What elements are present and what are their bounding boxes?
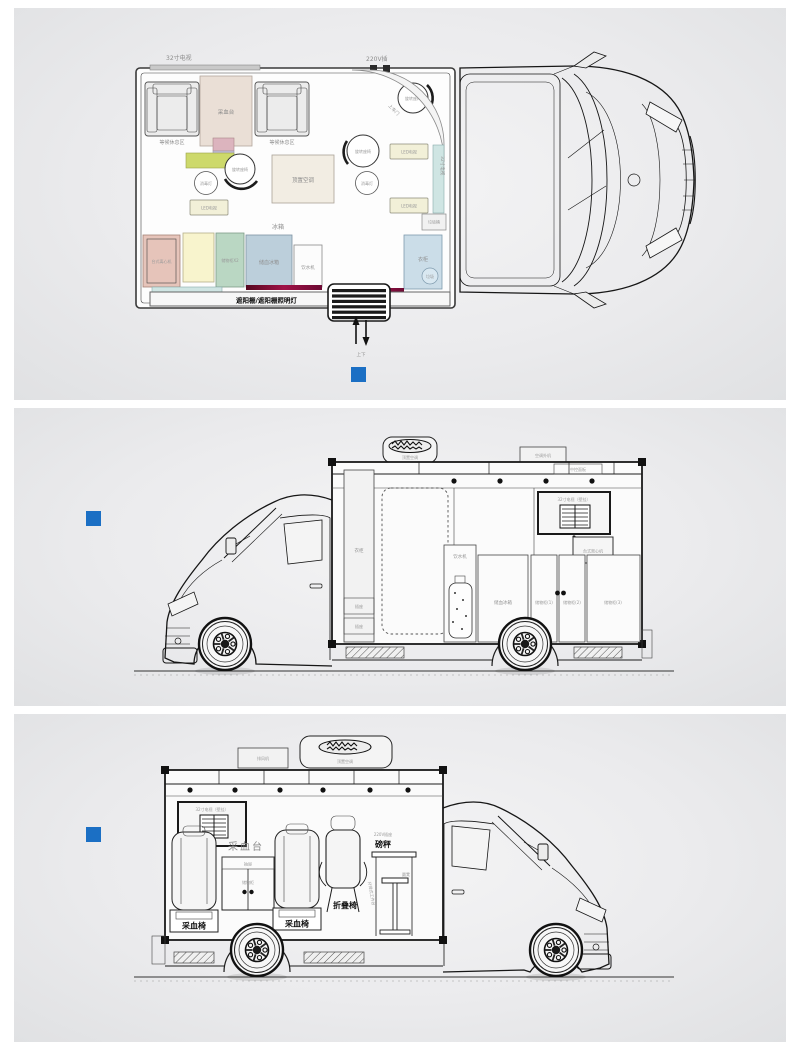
ceiling-light	[589, 478, 594, 483]
ceiling-light	[367, 787, 372, 792]
led-tv-label: LED电视	[201, 205, 217, 211]
blue-square-bullet	[351, 367, 366, 382]
blood-fridge-label: 储血冰箱	[259, 259, 279, 266]
brochure-page: 32寸电视 220V插 等候休息区 等候休息区 采血台	[0, 0, 800, 1042]
swivel-seat-label: 旋转座椅	[355, 148, 371, 154]
door-window	[452, 826, 490, 870]
waiting-sofa	[145, 82, 199, 136]
side-mirror	[574, 52, 606, 68]
fog-light	[593, 944, 599, 950]
centrifuge-label: 台式离心机	[152, 258, 172, 264]
centrifuge-label: 台式离心机	[583, 548, 603, 554]
door-handle	[242, 890, 246, 894]
blood-chair: 采血椅	[273, 824, 321, 930]
exhaust-fan-unit: 排风机	[238, 748, 288, 768]
storage-cabinet-3: 储物柜(3)	[587, 555, 640, 642]
ceiling-light	[320, 787, 325, 792]
cab-top-view	[460, 52, 695, 308]
control-panel-label: 中控面板	[570, 466, 586, 472]
outlet-label: 220V插座	[374, 831, 392, 837]
ceiling-light	[543, 478, 548, 483]
awning-label: 遮阳棚/遮阳棚照明灯	[236, 296, 297, 305]
door-handle	[249, 890, 253, 894]
headlight	[576, 898, 606, 922]
side-tv-label: 32寸电视	[439, 156, 446, 176]
roof-ac-label: 顶置空调	[337, 758, 353, 764]
socket-label: 插座	[355, 603, 363, 609]
plan-view-panel: 32寸电视 220V插 等候休息区 等候休息区 采血台	[14, 8, 786, 400]
tv-wall-mount	[150, 65, 260, 70]
cream-cabinet-block	[183, 233, 214, 282]
blood-chair-label: 采血椅	[181, 921, 206, 931]
led-tv-box: LED电视	[390, 198, 428, 213]
storage-x2-label: 储物柜X2	[221, 257, 239, 263]
blood-fridge-label: 储血冰箱	[494, 599, 512, 606]
left-side-drawing: 顶置空调 空调外机 中控面	[14, 408, 786, 706]
right-side-drawing: 排风机 顶置空调	[14, 714, 786, 1042]
water-dispenser-label: 饮水机	[453, 553, 467, 560]
roof-ac-unit: 顶置空调	[383, 437, 437, 463]
ceiling-light	[451, 478, 456, 483]
side-mirror	[574, 292, 606, 308]
left-side-view-panel: 顶置空调 空调外机 中控面	[14, 408, 786, 706]
wardrobe-column: 衣柜 插座 插座	[344, 470, 374, 642]
headlight	[168, 592, 198, 616]
led-tv-label: LED电视	[401, 149, 417, 155]
underbody	[152, 936, 443, 972]
waiting-sofa	[255, 82, 309, 136]
trash-label: 垃圾	[426, 273, 434, 279]
blood-station-label: 采血台	[228, 840, 264, 853]
wall-tv-box: 32寸电视（壁挂）	[538, 492, 610, 539]
side-mirror	[226, 538, 236, 554]
ceiling-light	[187, 787, 192, 792]
wardrobe-label: 衣柜	[418, 256, 428, 263]
wardrobe-label: 衣柜	[355, 547, 364, 554]
brand-logo	[628, 174, 640, 186]
roof-ac-label: 顶置空调	[292, 176, 315, 184]
swivel-seat-label: 旋转座椅	[232, 166, 248, 172]
blood-chair: 采血椅	[170, 826, 218, 932]
centrifuge-block: 台式离心机	[143, 235, 180, 287]
water-dispenser-label: 饮水机	[301, 264, 315, 271]
step-strip	[246, 285, 322, 290]
cabinet1-label: 储物柜(1)	[535, 599, 553, 605]
door-window	[284, 520, 322, 564]
side-mirror	[538, 844, 548, 860]
trash-bin-label: 垃圾桶	[428, 219, 440, 225]
socket-label: 插座	[355, 623, 363, 629]
cab-side-view	[443, 802, 611, 972]
waiting-area-label: 等候休息区	[269, 139, 294, 146]
door-handle	[561, 591, 566, 596]
cabinet2-label: 储物柜(2)	[563, 599, 581, 605]
storage-x2-block: 储物柜X2	[216, 233, 244, 287]
disinfection-lamp: 消毒灯	[356, 172, 379, 195]
front-bumper	[163, 648, 197, 663]
water-dispenser-column: 饮水机	[444, 545, 476, 642]
updown-label: 上下	[357, 351, 366, 358]
ceiling-light	[405, 787, 410, 792]
scale-label: 磅秤	[375, 839, 391, 849]
waiting-area-label: 等候休息区	[159, 139, 184, 146]
roof-ac-label: 顶置空调	[402, 454, 418, 460]
disinfection-lamp-label: 消毒灯	[361, 180, 373, 186]
storage-cabinet-2: 储物柜(2)	[555, 555, 585, 642]
wall-tv-label: 32寸电视（壁挂）	[557, 496, 590, 502]
awning-platform	[150, 292, 450, 306]
plan-view-drawing: 32寸电视 220V插 等候休息区 等候休息区 采血台	[14, 8, 786, 400]
door-handle	[555, 591, 560, 596]
door-handle	[452, 890, 464, 894]
disinfection-lamp: 消毒灯	[195, 172, 218, 195]
tv-top-label: 32寸电视	[166, 54, 192, 62]
water-bottle	[449, 576, 472, 638]
led-tv-label: LED电视	[401, 203, 417, 209]
blue-square-bullet	[86, 827, 101, 842]
blood-chair-label: 采血椅	[284, 919, 309, 929]
disinfection-lamp-label: 消毒灯	[200, 180, 212, 186]
fog-light	[175, 638, 181, 644]
door-handle	[310, 584, 322, 588]
blood-station-label: 采血台	[218, 108, 235, 116]
right-side-view-panel: 排风机 顶置空调	[14, 714, 786, 1042]
exhaust-fan-label: 排风机	[257, 755, 269, 761]
ceiling-light	[497, 478, 502, 483]
cabinet-label: 储物柜	[242, 879, 254, 885]
front-wheel	[195, 618, 255, 675]
wardrobe-block: 衣柜 垃圾	[404, 235, 442, 289]
roof-ac-unit: 顶置空调	[300, 736, 392, 768]
blue-square-bullet	[86, 511, 101, 526]
water-dispenser-block: 饮水机	[294, 245, 322, 287]
blood-fridge-block: 储血冰箱	[246, 235, 292, 287]
ac-outdoor-label: 空调外机	[535, 452, 551, 458]
fridge-label: 冰箱	[272, 223, 284, 231]
updown-arrows: 上下	[353, 316, 370, 358]
front-wheel	[526, 924, 586, 981]
entry-stairs	[328, 284, 390, 321]
trash-bin-box: 垃圾桶	[422, 214, 446, 230]
ac-outdoor-unit: 空调外机	[520, 447, 566, 463]
outlet-label: 220V插	[366, 55, 388, 63]
ceiling-light	[277, 787, 282, 792]
led-tv-box: LED电视	[190, 200, 228, 215]
ceiling-light	[232, 787, 237, 792]
folding-chair-label: 折叠椅	[333, 900, 357, 910]
cabinet3-label: 储物柜(3)	[604, 599, 622, 605]
station-cabinet: 抽屉 储物柜	[222, 857, 274, 910]
pink-equipment-block	[213, 138, 234, 151]
wall-tv-label: 32寸电视（壁挂）	[195, 806, 228, 812]
led-tv-box: LED电视	[390, 144, 428, 159]
stool-label: 圆凳	[402, 871, 410, 877]
drawer-label: 抽屉	[244, 861, 252, 867]
